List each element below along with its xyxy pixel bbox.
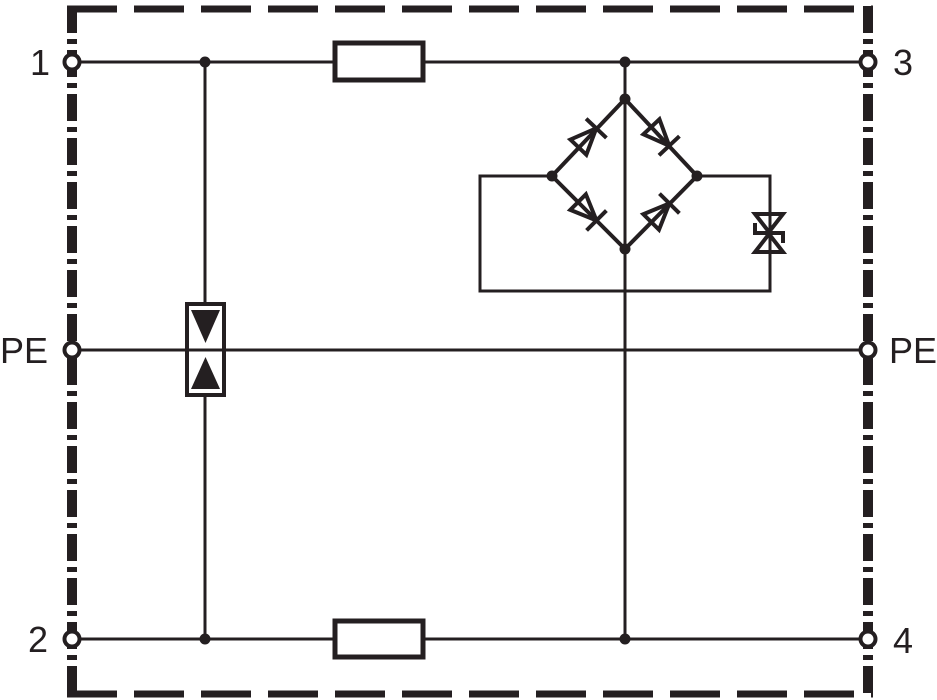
series-impedance-top-icon — [335, 43, 423, 80]
series-impedance-bottom-icon — [335, 621, 423, 657]
bridge-arm-top-left — [552, 99, 625, 176]
terminal-1-label: 1 — [30, 42, 50, 83]
junction-dot — [620, 57, 631, 68]
terminal-4-icon — [861, 632, 876, 647]
terminal-pe-left-label: PE — [0, 330, 48, 371]
gas-discharge-tube-icon — [185, 304, 226, 395]
terminal-pe-left-icon — [65, 343, 80, 358]
terminal-2-label: 2 — [28, 619, 48, 660]
bridge-arm-bottom-right — [625, 176, 697, 249]
terminal-pe-right-label: PE — [889, 330, 937, 371]
junction-dot — [547, 171, 558, 182]
terminal-pe-right-icon — [861, 343, 876, 358]
junction-dot — [692, 171, 703, 182]
terminal-3-icon — [861, 55, 876, 70]
terminal-4-label: 4 — [893, 620, 913, 661]
junction-dot — [200, 634, 211, 645]
junction-dot — [620, 94, 631, 105]
junction-dot — [200, 57, 211, 68]
terminal-1-icon — [65, 55, 80, 70]
terminal-2-icon — [65, 632, 80, 647]
junction-dot — [620, 634, 631, 645]
terminal-3-label: 3 — [893, 42, 913, 83]
junction-dot — [620, 244, 631, 255]
bridge-arm-top-right — [625, 99, 697, 176]
schematic-svg: 1 PE 2 3 PE 4 — [0, 0, 937, 700]
bridge-arm-bottom-left — [552, 176, 625, 249]
circuit-diagram: 1 PE 2 3 PE 4 — [0, 0, 937, 700]
